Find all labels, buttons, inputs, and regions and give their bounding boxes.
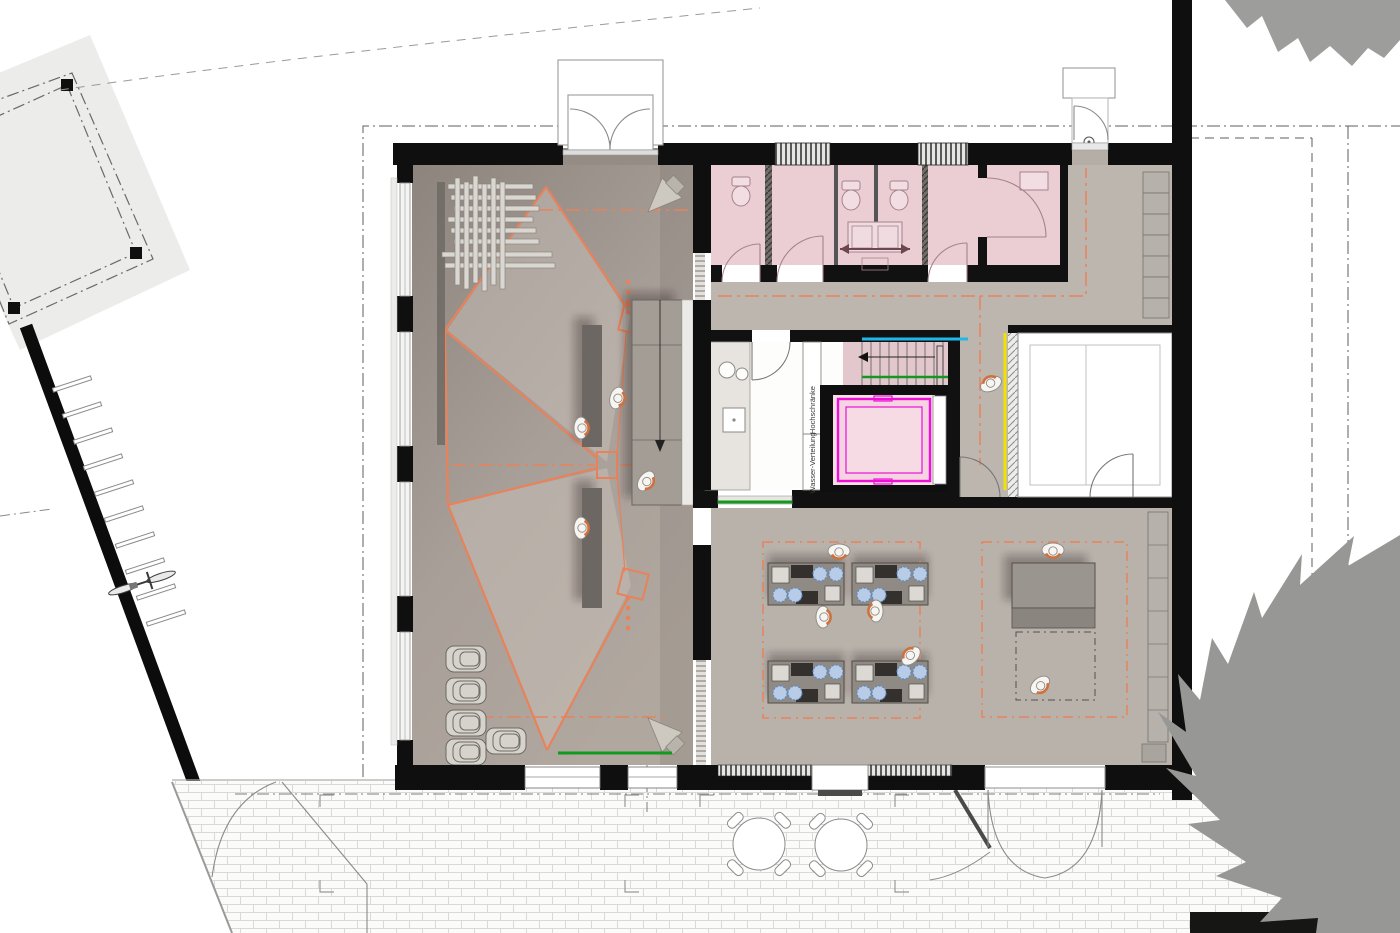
label-tall-cabinets: Hochschränke bbox=[808, 386, 817, 434]
elevator-icon bbox=[820, 385, 948, 492]
glazed-partition bbox=[695, 253, 705, 300]
hatched-wall bbox=[1008, 333, 1018, 497]
terrace-table-icon bbox=[808, 812, 874, 878]
toilet-icon bbox=[842, 181, 860, 210]
wc-fixture bbox=[1020, 172, 1048, 190]
trees bbox=[1158, 0, 1400, 933]
locker-cabinets bbox=[1143, 172, 1169, 318]
chair-stack-icon bbox=[486, 728, 526, 754]
high-window bbox=[918, 143, 968, 165]
person-icon bbox=[868, 600, 883, 622]
south-window bbox=[868, 765, 952, 776]
toilet-icon bbox=[732, 177, 750, 206]
bench bbox=[582, 488, 602, 608]
cooking-station-icon bbox=[768, 563, 844, 605]
person-icon bbox=[574, 417, 589, 439]
person-icon bbox=[828, 544, 850, 559]
person-icon bbox=[574, 517, 589, 539]
movable-partition-stack bbox=[632, 300, 682, 505]
person-icon bbox=[1042, 543, 1064, 558]
boundary-wall bbox=[26, 326, 200, 799]
chair-stack-icon bbox=[446, 646, 486, 672]
toilet-icon bbox=[890, 181, 908, 210]
storage-room bbox=[1005, 333, 1172, 497]
glazed-partition bbox=[696, 660, 706, 765]
chair-stack-icon bbox=[446, 710, 486, 736]
room-multipurpose-floor bbox=[711, 508, 1172, 765]
high-window bbox=[775, 143, 830, 165]
closet-strip: Hochschränke Wasser-Verteilung bbox=[803, 342, 821, 494]
tree-icon bbox=[1225, 0, 1400, 66]
chair-stack-icon bbox=[446, 739, 486, 765]
label-water-distribution: Wasser-Verteilung bbox=[808, 433, 817, 494]
wall-panel bbox=[437, 182, 445, 445]
northeast-entrance bbox=[1063, 68, 1115, 150]
cabinet-box bbox=[1142, 744, 1166, 762]
terrace-table-icon bbox=[726, 811, 792, 877]
cooking-station-icon bbox=[852, 661, 928, 703]
sink-icon bbox=[736, 368, 748, 380]
kitchen bbox=[705, 342, 803, 490]
south-window bbox=[718, 765, 812, 776]
floor-plan-drawing: Hochschränke Wasser-Verteilung bbox=[0, 0, 1400, 933]
cooking-station-icon bbox=[768, 661, 844, 703]
floor-plan-canvas: Hochschränke Wasser-Verteilung bbox=[0, 0, 1400, 933]
stair-icon bbox=[823, 339, 968, 390]
pavilion-structure bbox=[0, 35, 190, 350]
cooking-station-icon bbox=[852, 563, 928, 605]
south-corridor-floor bbox=[960, 330, 1008, 508]
person-icon bbox=[816, 606, 831, 628]
wall-cabinets bbox=[1148, 512, 1168, 742]
north-vestibule bbox=[558, 60, 663, 155]
sink-icon bbox=[719, 362, 735, 378]
chair-stack-icon bbox=[446, 678, 486, 704]
site-axis-line bbox=[0, 509, 52, 516]
